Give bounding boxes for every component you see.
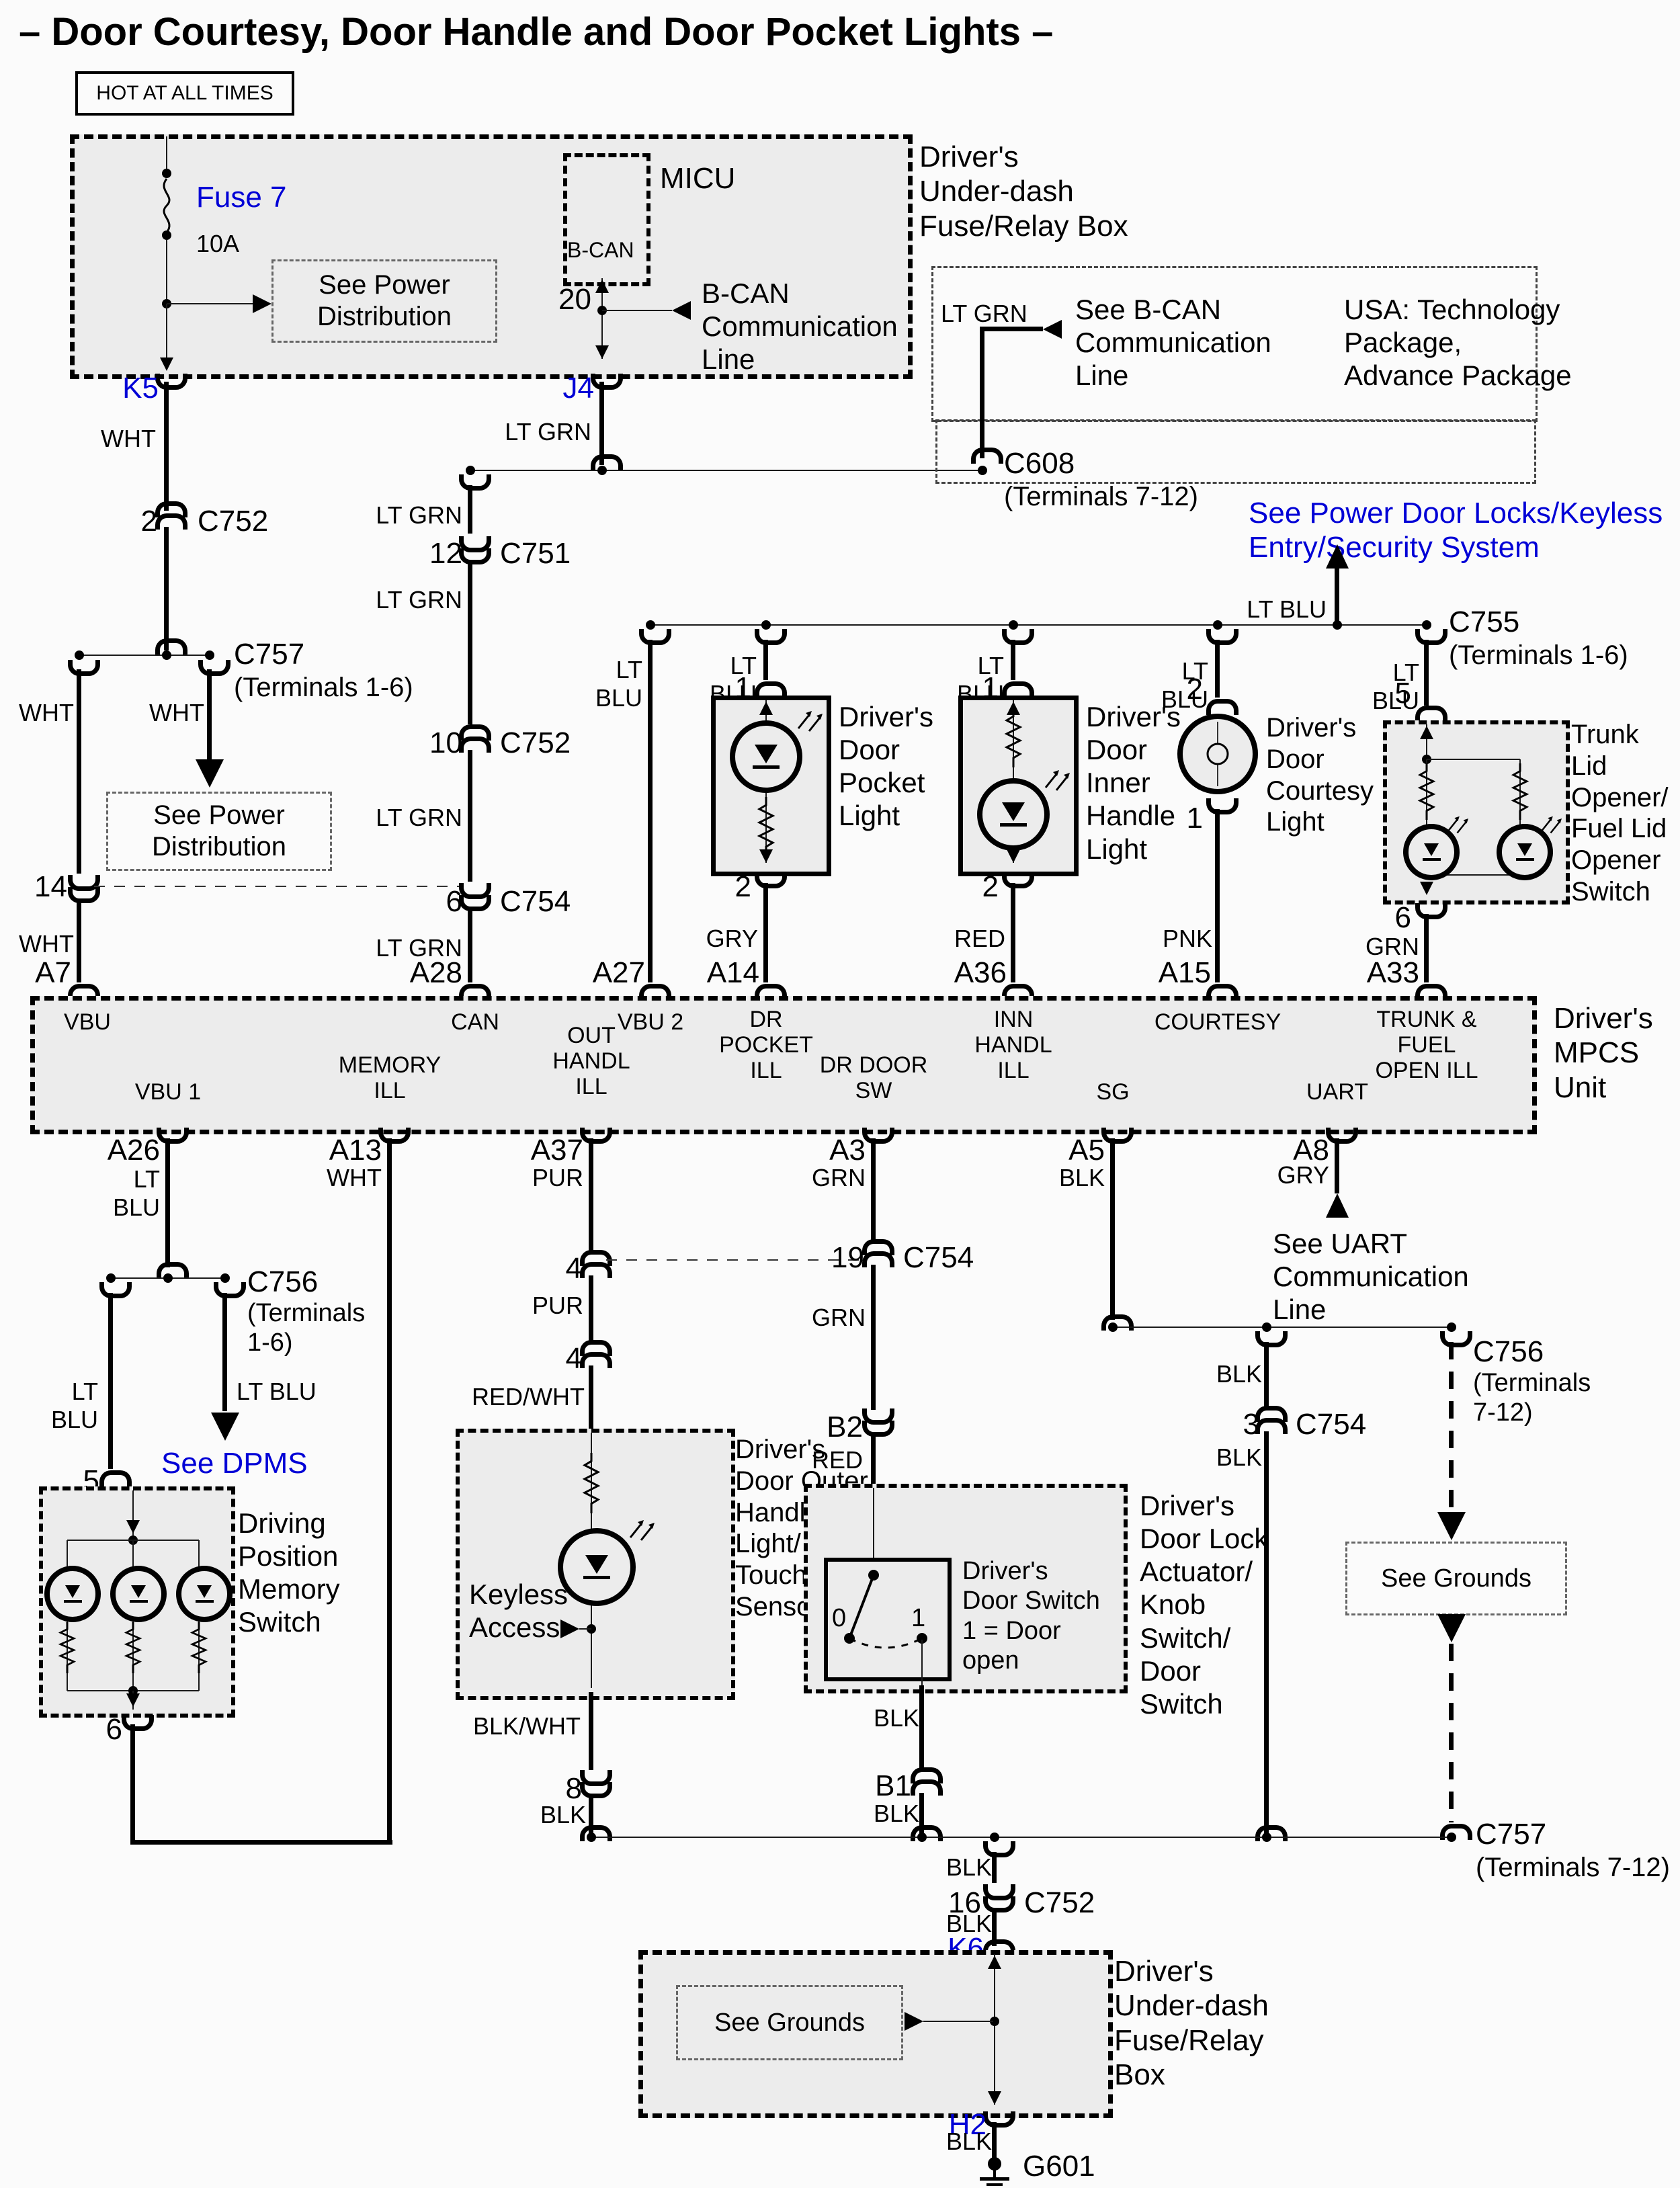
connector-c757-terms: (Terminals 1-6): [234, 672, 413, 704]
wire-color: GRY: [696, 925, 758, 953]
wire: [602, 310, 672, 311]
connector-c752: C752: [198, 504, 268, 538]
wire: [1215, 640, 1220, 698]
wire: [167, 303, 253, 304]
led-icon: [176, 1566, 233, 1622]
see-power-door-locks-note: See Power Door Locks/Keyless Entry/Secur…: [1249, 496, 1663, 565]
resistor-icon: [59, 1622, 75, 1673]
connector-tie-line: [94, 886, 462, 887]
pin-a26: A26: [98, 1133, 160, 1167]
connector-icon: [862, 1251, 894, 1267]
connector-icon: [68, 660, 100, 676]
junction-dot: [1009, 620, 1018, 630]
wire-color: LT GRN: [368, 586, 462, 614]
light-rays-icon: [1043, 763, 1074, 790]
wire: [1011, 883, 1015, 982]
mpcs-pin-trunk-fuel: TRUNK & FUEL OPEN ILL: [1375, 1007, 1478, 1083]
junction-dot: [990, 1833, 999, 1842]
wire: [992, 1852, 997, 1883]
wire-color: PUR: [521, 1292, 583, 1320]
wire: [1424, 640, 1429, 706]
pin-5: 5: [1376, 676, 1411, 710]
page-title: – Door Courtesy, Door Handle and Door Po…: [19, 9, 1053, 55]
wire: [130, 1724, 135, 1845]
junction-dot: [163, 1273, 173, 1283]
connector-icon: [1206, 699, 1238, 715]
wire-color: BLK: [1043, 1164, 1105, 1192]
wire: [1335, 1138, 1339, 1193]
wire-color: LT GRN: [368, 501, 462, 530]
see-bcan-note: See B-CAN Communication Line: [1075, 293, 1271, 392]
pin-4: 4: [547, 1341, 582, 1376]
led-icon: [977, 778, 1050, 851]
connector-icon: [1002, 872, 1034, 888]
junction-dot: [220, 1273, 230, 1283]
resistor-icon: [191, 1622, 207, 1673]
junction-dot: [162, 230, 171, 240]
junction-dot: [1213, 620, 1222, 630]
connector-icon: [157, 1128, 189, 1144]
wire: [1427, 759, 1520, 760]
connector-icon: [155, 513, 187, 530]
junction-dot: [1333, 620, 1342, 630]
connector-icon: [1255, 1418, 1288, 1434]
resistor-icon: [1512, 763, 1528, 820]
see-grounds-note: See Grounds: [1345, 1542, 1567, 1615]
ground-icon: [986, 2183, 1003, 2186]
connector-c754: C754: [903, 1240, 974, 1275]
wire: [1424, 914, 1429, 982]
connector-c756-terms: (Terminals 1-6): [247, 1298, 365, 1358]
switch-pos-0: 0: [832, 1603, 846, 1633]
wire: [1110, 1138, 1115, 1320]
connector-icon: [459, 895, 491, 911]
mpcs-pin-inn-handl-ill: INN HANDL ILL: [974, 1007, 1052, 1083]
wire: [164, 527, 169, 650]
connector-icon: [1255, 1825, 1288, 1841]
arrow-icon: [988, 1955, 1001, 1969]
wire: [599, 382, 604, 465]
arrow-icon: [1420, 726, 1433, 739]
wire: [468, 562, 472, 724]
wire: [387, 1138, 392, 1845]
wire-color: BLK: [524, 1801, 586, 1829]
wire-color: BLK: [930, 1853, 992, 1882]
connector-icon: [1101, 1314, 1134, 1331]
wire: [468, 909, 472, 982]
inner-handle-light-label: Driver's Door Inner Handle Light: [1086, 700, 1181, 866]
pin-2: 2: [964, 870, 999, 904]
mpcs-pin-uart: UART: [1306, 1079, 1368, 1105]
pocket-light-label: Driver's Door Pocket Light: [839, 700, 933, 833]
wire-color: LT BLU: [569, 656, 642, 712]
light-rays-icon: [1446, 810, 1472, 833]
mpcs-pin-sg: SG: [1096, 1079, 1129, 1105]
pin-2: 2: [122, 504, 157, 538]
connector-icon: [580, 1262, 612, 1278]
junction-dot: [466, 466, 475, 475]
pin-a14: A14: [698, 956, 759, 990]
see-grounds-note: See Grounds: [676, 1985, 903, 2060]
arrow-icon: [595, 280, 609, 293]
bcan-label: B-CAN: [567, 238, 634, 263]
trunk-switch-label: Trunk Lid Opener/ Fuel Lid Opener Switch: [1571, 719, 1680, 908]
wire: [1113, 1327, 1452, 1328]
connector-icon: [911, 1779, 943, 1796]
resistor-icon: [758, 797, 774, 856]
connector-icon: [983, 2111, 1015, 2128]
wire-color: PUR: [521, 1164, 583, 1192]
arrow-icon: [196, 759, 224, 788]
pin-19: 19: [824, 1240, 864, 1275]
pin-a36: A36: [945, 956, 1007, 990]
wire-color: LT GRN: [497, 418, 591, 446]
wire: [130, 1840, 392, 1845]
arrow-icon: [595, 345, 609, 359]
connector-icon: [99, 1470, 132, 1486]
connector-c608-terms: (Terminals 7-12): [1004, 481, 1198, 513]
wire: [1264, 1431, 1269, 1837]
connector-c757-terms: (Terminals 7-12): [1476, 1852, 1670, 1884]
mpcs-unit-label: Driver's MPCS Unit: [1554, 1001, 1680, 1105]
ground-icon: [993, 2169, 996, 2177]
connector-icon: [580, 1825, 612, 1841]
pin-2: 2: [716, 870, 751, 904]
wire: [166, 240, 167, 304]
arrow-icon: [160, 357, 173, 371]
connector-c754: C754: [1296, 1407, 1366, 1441]
wire-color: GRY: [1267, 1161, 1329, 1189]
connector-c751: C751: [500, 536, 571, 571]
arrow-icon: [1437, 1614, 1466, 1642]
door-lock-actuator-label: Driver's Door Lock Actuator/ Knob Switch…: [1140, 1489, 1268, 1720]
junction-dot: [162, 169, 171, 178]
connector-c756: C756: [247, 1265, 318, 1299]
see-grounds-text: See Grounds: [714, 2008, 865, 2037]
pin-b1: B1: [866, 1769, 911, 1803]
fuse-rating: 10A: [196, 230, 239, 258]
wire-color: BLK: [1200, 1443, 1262, 1472]
wire-color: LT GRN: [368, 804, 462, 832]
connector-icon: [580, 1352, 612, 1368]
wire-color: LT GRN: [941, 300, 1027, 328]
wire: [164, 382, 169, 511]
connector-icon: [1206, 629, 1238, 645]
arrow-icon: [1007, 849, 1020, 863]
connector-icon: [122, 1715, 154, 1731]
junction-dot: [1108, 1322, 1118, 1332]
underdash-box-label-bottom: Driver's Under-dash Fuse/Relay Box: [1114, 1954, 1269, 2093]
wire-color: BLK: [1200, 1360, 1262, 1388]
wire: [79, 655, 210, 656]
connector-c757: C757: [1476, 1817, 1546, 1851]
wire: [763, 640, 768, 680]
wire: [589, 1138, 593, 1251]
led-icon: [110, 1566, 167, 1622]
junction-dot: [761, 620, 771, 630]
led-icon: [44, 1566, 101, 1622]
connector-icon: [862, 1421, 894, 1437]
wire-dashed: [1449, 1342, 1454, 1510]
pin-a15: A15: [1149, 956, 1211, 990]
wire: [108, 1293, 113, 1469]
wire-color: GRN: [804, 1304, 866, 1332]
connector-tie-line: [606, 1259, 859, 1261]
see-power-distribution-note: See Power Distribution: [106, 792, 332, 871]
junction-dot: [587, 1833, 596, 1842]
connector-icon: [1255, 1331, 1288, 1347]
connector-icon: [755, 872, 787, 888]
see-power-distribution-text: See Power Distribution: [317, 269, 452, 333]
wire: [1215, 809, 1220, 982]
resistor-icon: [1419, 763, 1435, 820]
arrow-icon: [672, 301, 691, 320]
wire: [222, 1293, 227, 1411]
led-icon: [730, 720, 802, 793]
connector-icon: [198, 660, 230, 676]
wire-color: BLK: [857, 1704, 919, 1732]
junction-dot: [162, 650, 171, 660]
junction-dot: [106, 1273, 116, 1283]
arrow-icon: [1043, 320, 1062, 339]
wire-color: WHT: [19, 930, 74, 958]
connector-c754: C754: [500, 884, 571, 919]
mpcs-pin-vbu1: VBU 1: [135, 1079, 201, 1105]
connector-icon: [459, 548, 491, 564]
pin-a33: A33: [1357, 956, 1419, 990]
pin-a37: A37: [521, 1133, 583, 1167]
connector-icon: [862, 1128, 894, 1144]
pin-20: 20: [551, 282, 591, 317]
wire: [921, 1640, 923, 1685]
wire: [919, 1685, 924, 1769]
mpcs-pin-can: CAN: [451, 1009, 499, 1035]
connector-c756-terms: (Terminals 7-12): [1473, 1368, 1591, 1428]
connector-icon: [755, 629, 787, 645]
usa-package-note: USA: Technology Package, Advance Package: [1344, 293, 1572, 392]
connector-c608: C608: [1004, 446, 1075, 480]
connector-c757: C757: [234, 637, 304, 671]
connector-icon: [591, 454, 623, 470]
wire-color: WHT: [320, 1164, 382, 1192]
wire: [648, 640, 653, 982]
wire-color: WHT: [19, 699, 74, 727]
wire: [992, 2122, 997, 2160]
wire: [982, 327, 1043, 331]
wire: [470, 470, 982, 471]
wire: [763, 883, 768, 982]
wire: [980, 327, 984, 458]
wire-color: BLK/WHT: [460, 1712, 581, 1740]
keyless-access-label: Keyless Access: [469, 1578, 568, 1644]
wire-color: PNK: [1150, 925, 1212, 953]
junction-dot: [1262, 1322, 1271, 1332]
connector-icon: [1415, 706, 1447, 722]
switch-pos-1: 1: [911, 1603, 925, 1633]
wire: [468, 485, 472, 534]
pin-10: 10: [422, 726, 462, 760]
led-icon: [558, 1528, 636, 1606]
connector-icon: [1101, 1128, 1134, 1144]
wire-color: WHT: [94, 425, 156, 453]
wire: [589, 1275, 593, 1341]
light-rays-icon: [628, 1513, 659, 1540]
arrow-icon: [126, 1693, 140, 1707]
connector-icon: [155, 374, 187, 390]
arrow-icon: [1326, 1193, 1349, 1218]
connector-icon: [157, 1262, 189, 1278]
pin-b2: B2: [817, 1410, 863, 1444]
mpcs-pin-courtesy: COURTESY: [1154, 1009, 1281, 1035]
wire: [166, 136, 167, 172]
connector-icon: [591, 374, 623, 390]
resistor-icon: [125, 1622, 141, 1673]
arrow-icon: [253, 294, 271, 313]
pin-1: 1: [1168, 801, 1203, 835]
connector-icon: [911, 1825, 943, 1841]
wire: [871, 1265, 876, 1410]
pin-12: 12: [422, 536, 462, 571]
mpcs-pin-dr-door-sw: DR DOOR SW: [820, 1052, 928, 1103]
wire: [1335, 569, 1339, 625]
pin-6: 6: [87, 1712, 122, 1747]
wire-color: BLK: [930, 2128, 992, 2156]
wire: [77, 669, 81, 874]
wire-color: LT BLU: [237, 1378, 317, 1406]
connector-c752: C752: [500, 726, 571, 760]
junction-dot: [917, 1833, 927, 1842]
wire: [165, 1138, 170, 1267]
wire: [468, 750, 472, 882]
fuse-icon: [156, 179, 177, 233]
pin-3: 3: [1224, 1407, 1259, 1441]
resistor-icon: [1005, 708, 1021, 767]
connector-icon: [155, 638, 187, 655]
micu-label: MICU: [660, 161, 735, 196]
connector-icon: [639, 629, 671, 645]
underdash-box-label-top: Driver's Under-dash Fuse/Relay Box: [919, 140, 1128, 243]
wire: [1011, 640, 1015, 680]
mpcs-pin-vbu: VBU: [64, 1009, 111, 1035]
connector-icon: [971, 448, 1003, 464]
mpcs-pin-dr-pocket-ill: DR POCKET ILL: [719, 1007, 813, 1083]
junction-dot: [646, 620, 655, 630]
wire-color: WHT: [149, 699, 204, 727]
ground-icon: [980, 2177, 1009, 2181]
wire: [589, 1692, 593, 1770]
wire: [166, 304, 167, 359]
pin-a3: A3: [804, 1133, 866, 1167]
pin-6: 6: [1376, 900, 1411, 935]
wire: [871, 1138, 876, 1240]
connector-icon: [378, 1128, 411, 1144]
terminal-j4: J4: [546, 371, 594, 405]
arrow-icon: [905, 2012, 923, 2031]
arrow-icon: [759, 702, 773, 715]
see-grounds-text: See Grounds: [1381, 1564, 1531, 1593]
wire: [589, 1365, 593, 1429]
arrow-icon: [988, 2091, 1001, 2105]
ground-icon: [988, 2157, 1001, 2171]
connector-icon: [1326, 1128, 1358, 1144]
wiring-diagram-page: { "title": "– Door Courtesy, Door Handle…: [0, 0, 1680, 2188]
arrow-icon: [1420, 882, 1433, 895]
ground-label: G601: [1023, 2149, 1095, 2183]
pin-a27: A27: [583, 956, 645, 990]
connector-icon: [214, 1282, 246, 1298]
terminal-k5: K5: [108, 371, 159, 405]
connector-icon: [580, 1128, 612, 1144]
mpcs-pin-out-handl-ill: OUT HANDL ILL: [552, 1023, 630, 1099]
junction-dot: [205, 650, 214, 660]
pin-4: 4: [547, 1251, 582, 1286]
connector-icon: [580, 1782, 612, 1798]
connector-c752: C752: [1024, 1886, 1095, 1920]
junction-dot: [1262, 1833, 1271, 1842]
connector-c756: C756: [1473, 1335, 1544, 1369]
hot-label: HOT AT ALL TIMES: [96, 82, 273, 105]
wire-color: LT BLU: [1239, 595, 1327, 624]
junction-dot: [597, 466, 607, 475]
pin-14: 14: [32, 870, 67, 904]
wire: [923, 2021, 993, 2022]
junction-dot: [1422, 620, 1431, 630]
connector-icon: [99, 1282, 132, 1298]
junction-dot: [75, 650, 84, 660]
connector-c755-terms: (Terminals 1-6): [1449, 640, 1628, 671]
wire: [207, 669, 212, 759]
wire-color: RED: [943, 925, 1005, 953]
arrow-icon: [560, 1619, 579, 1638]
wire-dashed: [1449, 1644, 1454, 1822]
connector-icon: [459, 474, 491, 491]
wire: [77, 900, 81, 982]
wire: [591, 1837, 1452, 1838]
connector-icon: [1415, 903, 1447, 919]
micu-box: [563, 153, 650, 286]
wire-color: LT BLU: [86, 1165, 160, 1222]
fuse-name: Fuse 7: [196, 180, 287, 214]
light-rays-icon: [1540, 810, 1565, 833]
see-power-distribution-text: See Power Distribution: [152, 800, 286, 863]
connector-icon: [1206, 798, 1238, 814]
wire-color: GRN: [804, 1164, 866, 1192]
wire: [579, 1628, 591, 1630]
connector-c755: C755: [1449, 605, 1519, 639]
pin-2: 2: [1168, 672, 1203, 706]
wire-color: BLK: [857, 1800, 919, 1828]
connector-icon: [68, 887, 100, 903]
connector-icon: [1440, 1331, 1472, 1347]
wire-color: RED/WHT: [464, 1383, 585, 1411]
bcan-comm-line-note: B-CAN Communication Line: [702, 277, 898, 376]
see-power-distribution-note: See Power Distribution: [271, 259, 497, 343]
connector-icon: [1002, 629, 1034, 645]
arrow-icon: [126, 1520, 140, 1533]
arrow-icon: [1326, 544, 1349, 569]
pin-a28: A28: [401, 956, 462, 990]
junction-dot: [1447, 1833, 1456, 1842]
wire: [871, 1434, 876, 1484]
door-switch-note: Driver's Door Switch 1 = Door open: [962, 1556, 1100, 1676]
pin-a5: A5: [1043, 1133, 1105, 1167]
connector-icon: [1415, 629, 1447, 645]
wire: [1264, 1342, 1269, 1406]
wire-color: LT BLU: [24, 1378, 98, 1434]
connector-icon: [459, 737, 491, 753]
mpcs-pin-memory-ill: MEMORY ILL: [339, 1052, 441, 1103]
bulb-filament-icon: [1183, 719, 1253, 789]
